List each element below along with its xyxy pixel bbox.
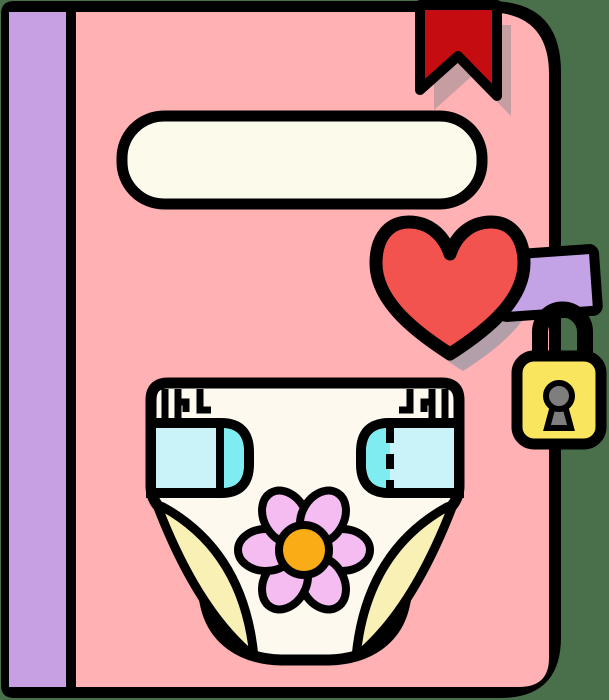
padlock-keyhole-circle (546, 383, 572, 409)
flower-center (279, 525, 329, 575)
title-label (122, 116, 482, 204)
diary-illustration (0, 0, 609, 700)
book-spine (9, 12, 66, 687)
diary-illustration-canvas (0, 0, 609, 700)
